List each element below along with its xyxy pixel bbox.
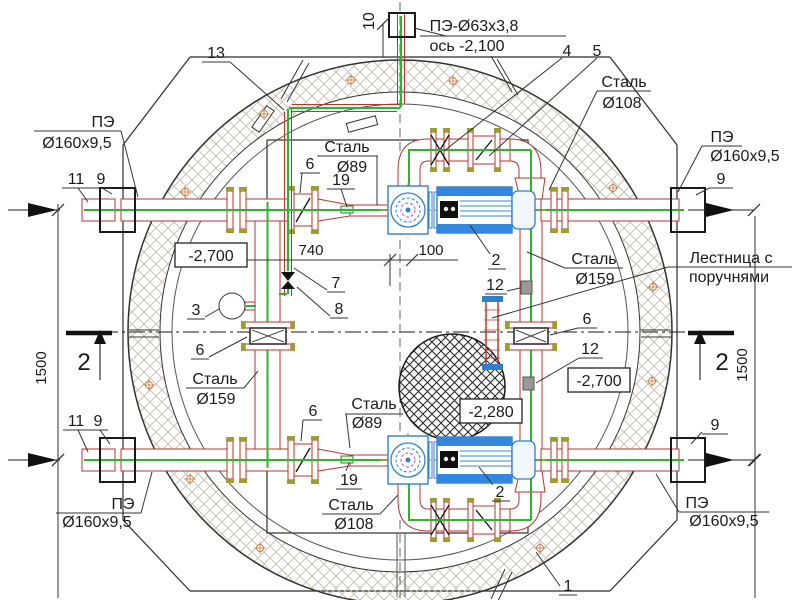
callout-10: 10 [361,12,378,30]
callout-4: 4 [563,43,572,60]
pe-bottom-left-size: Ø160х9,5 [62,514,131,531]
callout-19-top: 19 [332,172,350,189]
callout-5: 5 [593,43,602,60]
steel-108-bottom-size: Ø108 [334,516,373,533]
callout-1: 1 [564,578,573,595]
callout-2-bottom: 2 [496,484,505,501]
callout-6-left: 6 [196,342,205,359]
steel-108-top-material: Сталь [601,74,646,91]
pe-bottom-right-material: ПЭ [686,495,709,512]
callout-7: 7 [332,275,341,292]
callout-2-top: 2 [492,252,501,269]
dim-740: 740 [298,242,323,259]
callout-9-top-right: 9 [717,171,726,188]
steel-89-bottom-size: Ø89 [352,415,382,432]
callout-12-lower: 12 [581,341,599,358]
callout-9-bottom-right: 9 [711,417,720,434]
callout-12-upper: 12 [486,277,504,294]
manifold-flange-joint [241,321,295,351]
callout-6-top: 6 [306,156,315,173]
steel-159-right-material: Сталь [571,251,616,268]
inlet-arrow-bottom [8,453,64,467]
pe-bottom-right-size: Ø160х9,5 [689,513,758,530]
elevation-2280: -2,280 [468,404,513,421]
steel-108-top-size: Ø108 [602,95,641,112]
steel-108-bottom-material: Сталь [328,497,373,514]
dim-1500-left: 1500 [33,351,50,384]
pe-top-left-size: Ø160х9,5 [42,135,111,152]
steel-159-left-size: Ø159 [196,391,235,408]
inlet-arrow-top [8,203,64,217]
elevation-2700-right: -2,700 [576,373,621,390]
dim-1500-right: 1500 [734,348,751,381]
callout-11-top: 11 [68,171,85,188]
steel-89-top-material: Сталь [324,139,369,156]
pe-top-left-material: ПЭ [92,114,115,131]
callout-9-bottom-left: 9 [94,413,103,430]
ladder-label-line2: поручнями [689,269,769,286]
callout-11-bottom: 11 [68,413,85,430]
callout-19-bottom: 19 [340,472,358,489]
callout-13: 13 [207,45,225,62]
top-sleeve-spec: ПЭ-Ø63х3,8 [430,18,519,35]
elevation-2700-left: -2,700 [188,248,233,265]
level-gauge [219,293,256,319]
pe-top-right-material: ПЭ [711,129,734,146]
cad-drawing-canvas: ПЭ-Ø63х3,8 ось -2,100 10 13 4 5 Сталь Ø1… [0,0,800,600]
pump-station-plan-svg: ПЭ-Ø63х3,8 ось -2,100 10 13 4 5 Сталь Ø1… [0,0,800,600]
section-2-right-label: 2 [715,349,728,376]
pe-top-right-size: Ø160х9,5 [710,148,779,165]
steel-159-left-material: Сталь [192,371,237,388]
steel-159-right-size: Ø159 [575,271,614,288]
callout-6-right: 6 [583,311,592,328]
section-2-left-label: 2 [77,349,90,376]
callout-6-bottom: 6 [309,403,318,420]
ladder-label-line1: Лестница с [689,250,772,267]
dim-100: 100 [418,242,443,259]
pe-bottom-left-material: ПЭ [112,496,135,513]
drain-valve-icon [281,272,295,281]
header-flange-joint [505,321,557,351]
callout-3: 3 [192,302,201,319]
callout-8: 8 [335,301,344,318]
top-sleeve-axis-elevation: ось -2,100 [429,38,504,55]
steel-89-bottom-material: Сталь [351,396,396,413]
callout-9-top-left: 9 [97,171,106,188]
